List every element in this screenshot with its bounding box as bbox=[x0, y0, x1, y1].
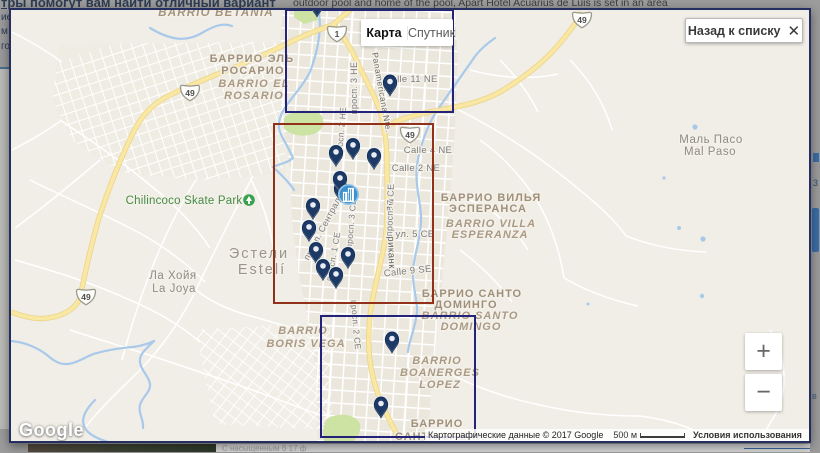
svg-text:Estelí: Estelí bbox=[238, 262, 286, 278]
svg-text:Calle 4 NE: Calle 4 NE bbox=[404, 145, 452, 156]
svg-text:DOMINGO: DOMINGO bbox=[441, 321, 502, 333]
svg-text:BORIS VEGA: BORIS VEGA bbox=[266, 338, 345, 350]
svg-text:49: 49 bbox=[185, 88, 195, 98]
svg-text:BOANERGES: BOANERGES bbox=[400, 367, 480, 379]
svg-text:BARRIO BETANIA: BARRIO BETANIA bbox=[158, 10, 274, 19]
svg-text:La Joya: La Joya bbox=[152, 283, 196, 295]
svg-text:ROSARIO: ROSARIO bbox=[224, 90, 284, 102]
svg-text:просп. 3 НЕ: просп. 3 НЕ bbox=[349, 62, 359, 115]
svg-text:BARRIO EL: BARRIO EL bbox=[218, 78, 289, 90]
svg-text:BARRIO: BARRIO bbox=[412, 355, 461, 367]
svg-text:1: 1 bbox=[335, 29, 340, 39]
svg-text:Mal Paso: Mal Paso bbox=[684, 146, 736, 158]
svg-text:ЭСПЕРАНСА: ЭСПЕРАНСА bbox=[449, 203, 527, 215]
svg-text:просп. 7 СЕ: просп. 7 СЕ bbox=[384, 183, 396, 236]
svg-text:РОСАРИО: РОСАРИО bbox=[221, 65, 285, 77]
svg-text:Эстели: Эстели bbox=[229, 246, 289, 262]
svg-text:Chilincoco Skate Park: Chilincoco Skate Park bbox=[126, 195, 243, 207]
svg-text:49: 49 bbox=[405, 130, 415, 140]
svg-text:ул. 5 СЕ: ул. 5 СЕ bbox=[396, 229, 435, 240]
svg-text:Маль Пасо: Маль Пасо bbox=[679, 134, 742, 146]
svg-text:49: 49 bbox=[577, 15, 587, 25]
svg-text:Ла Хойя: Ла Хойя bbox=[149, 270, 196, 282]
svg-text:БАРРИО ЭЛЬ: БАРРИО ЭЛЬ bbox=[210, 53, 295, 65]
svg-text:49: 49 bbox=[81, 292, 91, 302]
svg-text:ESPERANZA: ESPERANZA bbox=[452, 229, 529, 241]
svg-text:LOPEZ: LOPEZ bbox=[419, 379, 461, 391]
